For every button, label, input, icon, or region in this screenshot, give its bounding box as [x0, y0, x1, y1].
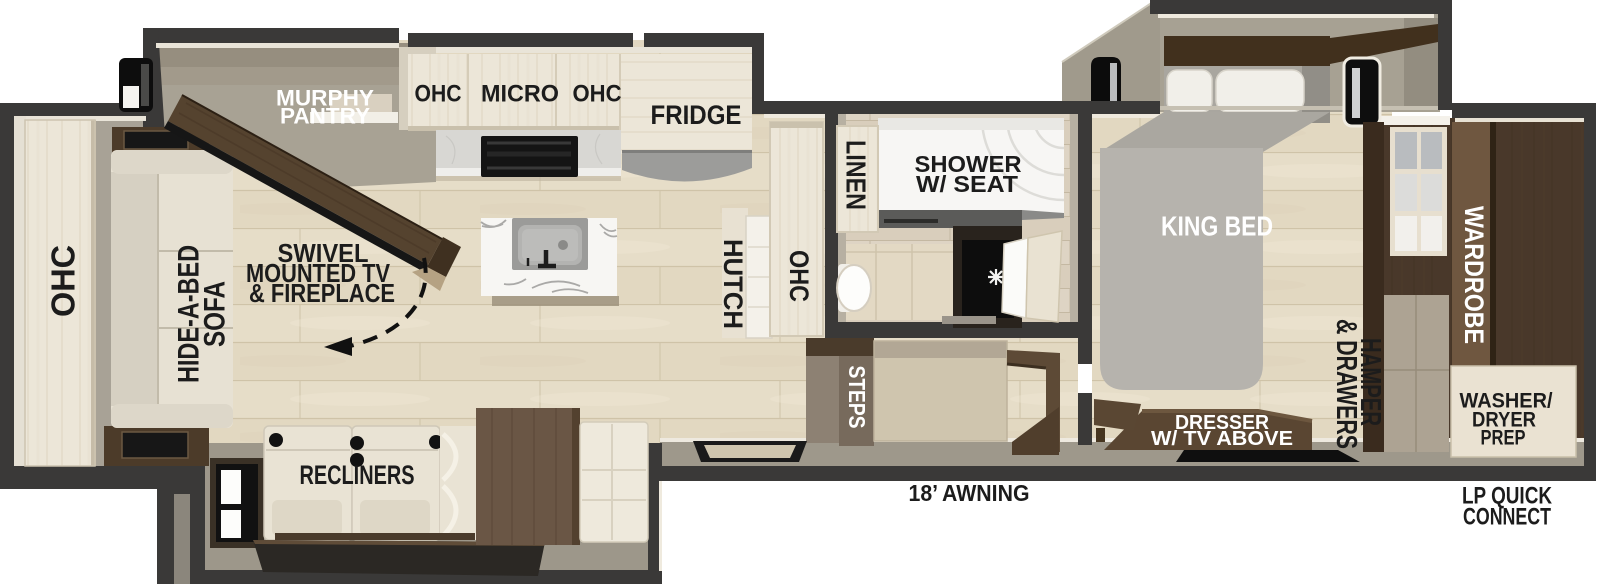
svg-text:OHC: OHC — [45, 245, 82, 317]
svg-text:PREP: PREP — [1481, 427, 1526, 450]
svg-text:KING BED: KING BED — [1161, 211, 1273, 242]
svg-text:18’ AWNING: 18’ AWNING — [909, 480, 1030, 506]
svg-text:OHC: OHC — [415, 81, 462, 108]
svg-text:& FIREPLACE: & FIREPLACE — [249, 278, 395, 308]
svg-text:RECLINERS: RECLINERS — [300, 460, 415, 490]
svg-text:& DRAWERS: & DRAWERS — [1330, 319, 1362, 449]
svg-text:CONNECT: CONNECT — [1463, 504, 1551, 531]
svg-text:OHC: OHC — [573, 81, 622, 108]
svg-text:FRIDGE: FRIDGE — [651, 100, 742, 130]
svg-text:PANTRY: PANTRY — [280, 104, 370, 129]
svg-text:WARDROBE: WARDROBE — [1459, 206, 1489, 344]
svg-text:HUTCH: HUTCH — [718, 239, 748, 329]
svg-text:SOFA: SOFA — [199, 281, 232, 347]
svg-text:MICRO: MICRO — [481, 81, 559, 108]
svg-text:OHC: OHC — [784, 250, 814, 302]
svg-text:LINEN: LINEN — [841, 140, 872, 210]
svg-text:W/ TV ABOVE: W/ TV ABOVE — [1151, 428, 1293, 450]
svg-text:STEPS: STEPS — [844, 366, 870, 429]
svg-text:W/ SEAT: W/ SEAT — [916, 171, 1018, 197]
